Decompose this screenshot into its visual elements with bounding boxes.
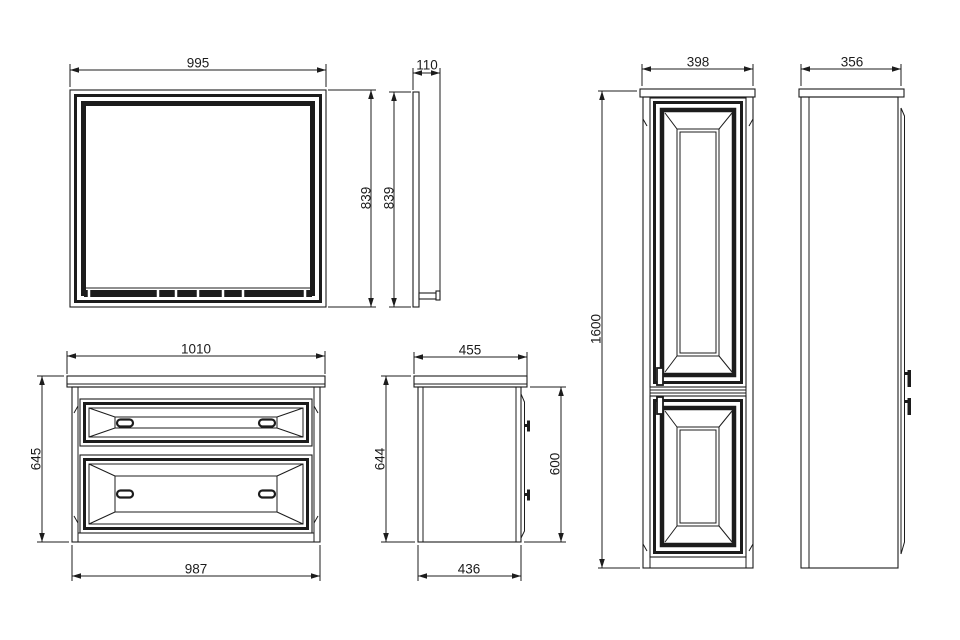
tall-cabinet-upper-door: [650, 98, 746, 387]
door-handle: [657, 368, 663, 385]
drawer-handle: [259, 491, 275, 498]
dim-tall-cabinet-width: 398: [642, 55, 753, 87]
vanity-lower-drawer: [80, 455, 312, 533]
dim-tall-cabinet-depth: 356: [801, 55, 901, 87]
dim-label-vanity-side-bottom-depth: 436: [458, 562, 481, 577]
dim-vanity-side-top-depth: 455: [414, 343, 527, 386]
dim-mirror-height: 839: [328, 90, 376, 307]
dim-label-mirror-width: 995: [187, 56, 210, 71]
drawer-handle: [117, 491, 133, 498]
tall-cabinet-lower-door: [650, 396, 746, 557]
furniture-technical-drawing: 995 839 839 110: [0, 0, 960, 640]
dim-mirror-side-height: 839: [382, 92, 412, 307]
door-handle: [657, 397, 663, 414]
dim-label-tall-cabinet-height: 1600: [589, 314, 604, 344]
dim-label-vanity-top-width: 1010: [181, 342, 211, 357]
dim-vanity-side-overall-height: 644: [373, 376, 416, 542]
vanity-front-view: [67, 376, 325, 542]
dim-mirror-width: 995: [70, 56, 326, 88]
tall-cabinet-side-view: [799, 89, 911, 568]
dim-label-mirror-depth: 110: [416, 58, 438, 73]
dim-label-vanity-height: 645: [29, 448, 44, 471]
dim-vanity-side-body-height: 600: [524, 387, 566, 542]
mirror-front-view: [70, 90, 326, 307]
vanity-side-view: [414, 376, 530, 542]
tall-cabinet-front-view: [640, 89, 755, 568]
dim-vanity-side-bottom-depth: 436: [418, 545, 521, 581]
dim-label-vanity-bottom-width: 987: [185, 562, 208, 577]
dim-label-tall-cabinet-depth: 356: [841, 55, 864, 70]
dim-tall-cabinet-height: 1600: [589, 91, 641, 568]
drawer-handle: [117, 420, 133, 427]
vanity-upper-drawer: [80, 399, 312, 446]
dim-label-vanity-side-body-height: 600: [548, 453, 563, 476]
drawer-handle: [259, 420, 275, 427]
dim-label-mirror-height: 839: [359, 187, 374, 210]
dim-vanity-bottom-width: 987: [72, 545, 320, 581]
mirror-side-view: [413, 92, 440, 307]
dim-label-vanity-side-top-depth: 455: [459, 343, 482, 358]
dim-vanity-top-width: 1010: [67, 342, 325, 375]
dim-label-tall-cabinet-width: 398: [687, 55, 710, 70]
dim-label-mirror-side-height: 839: [382, 187, 397, 210]
dim-label-vanity-side-overall-height: 644: [373, 447, 388, 470]
dim-vanity-height: 645: [29, 376, 70, 542]
